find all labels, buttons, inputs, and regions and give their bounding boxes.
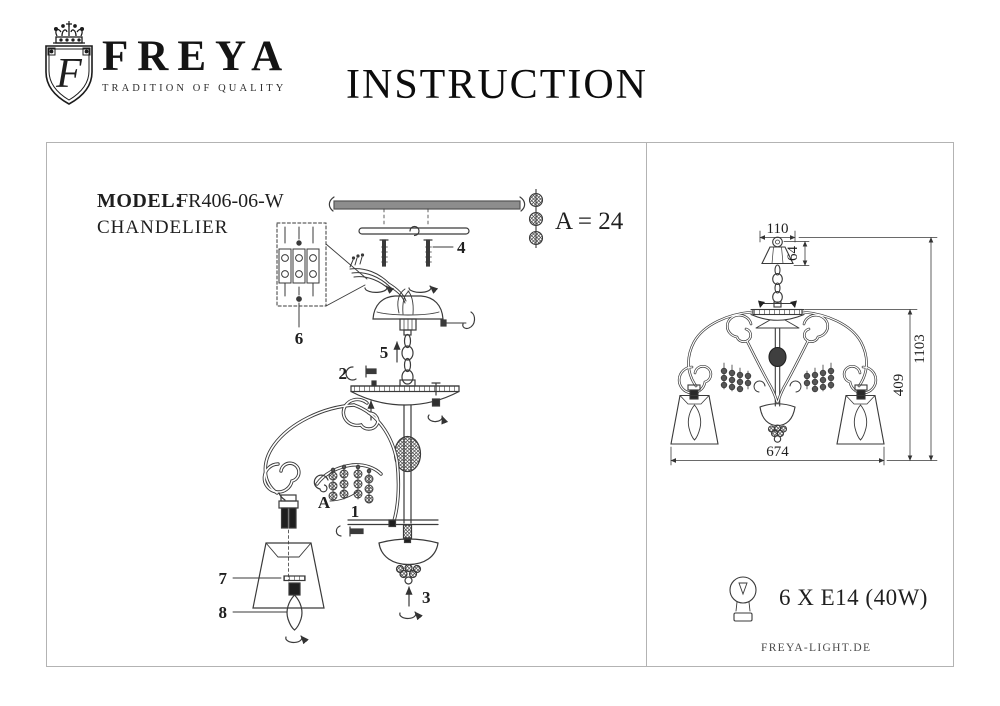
label-7: 7 <box>219 569 228 588</box>
crown-icon <box>53 21 85 43</box>
rotate-arrow-icon <box>428 415 442 422</box>
chain-outline <box>773 265 783 307</box>
assembly-diagram: MODEL: FR406-06-W CHANDELIER A = 24 <box>47 143 646 666</box>
ceiling <box>329 197 524 227</box>
label-2: 2 <box>339 364 348 383</box>
bead-count-note: A = 24 <box>555 208 624 235</box>
rotate-arrow-icon <box>346 367 356 380</box>
socket <box>279 495 298 581</box>
label-A: A <box>318 493 331 512</box>
rotate-arrow-icon <box>365 286 387 292</box>
label-6: 6 <box>295 329 304 348</box>
model-value: FR406-06-W <box>177 190 284 212</box>
label-8: 8 <box>219 603 228 622</box>
rotate-arrow-icon <box>286 636 302 642</box>
rotate-arrow-icon <box>409 286 431 292</box>
shade-ring <box>284 576 305 581</box>
dim-64: 64 <box>785 246 801 262</box>
bead-strings-outline <box>721 363 834 392</box>
brand-tagline: TRADITION OF QUALITY <box>102 83 291 94</box>
page-title: INSTRUCTION <box>346 61 648 109</box>
bulb-base <box>289 583 300 595</box>
chain <box>402 330 413 384</box>
rod-outline <box>769 328 786 406</box>
product-type: CHANDELIER <box>97 217 228 238</box>
scroll-arm <box>264 399 398 524</box>
dim-674: 674 <box>766 444 789 460</box>
model-label: MODEL: <box>97 190 182 212</box>
bowl-outline <box>760 404 795 442</box>
website: FREYA-LIGHT.DE <box>761 642 871 654</box>
canopy <box>373 296 475 330</box>
instruction-sheet: MODEL: FR406-06-W CHANDELIER A = 24 <box>46 142 954 667</box>
dim-1103: 1103 <box>912 334 928 363</box>
plate-screw <box>346 366 376 380</box>
mounting-screws <box>380 240 453 266</box>
arm-plate-outline <box>751 301 804 329</box>
dim-110: 110 <box>767 221 789 237</box>
mounting-bracket <box>359 227 469 236</box>
rotate-arrow-icon <box>400 612 416 618</box>
logo-monogram: F <box>55 51 82 97</box>
arm-attachment <box>336 520 438 543</box>
dimension-diagram: 110 64 1103 409 674 6 X E14 (40W) FREYA-… <box>647 143 953 666</box>
lampshade <box>233 543 324 642</box>
candle-bulb <box>287 595 302 630</box>
rotate-arrow-icon <box>336 526 341 536</box>
label-3: 3 <box>422 588 431 607</box>
bulb-spec: 6 X E14 (40W) <box>779 585 928 610</box>
wires <box>350 254 413 314</box>
terminal-block <box>277 223 367 327</box>
label-4: 4 <box>457 238 466 257</box>
label-5: 5 <box>380 343 389 362</box>
brand-name: FREYA <box>102 34 291 80</box>
brand-block: FREYA TRADITION OF QUALITY <box>102 34 291 94</box>
rotate-arrow-icon <box>463 312 475 328</box>
dim-409: 409 <box>891 374 907 397</box>
freya-logo-icon: F <box>36 14 102 106</box>
bulb-icon <box>730 577 756 621</box>
arm-plate <box>351 380 459 422</box>
label-1: 1 <box>351 502 360 521</box>
bead-count-icon <box>530 189 543 248</box>
